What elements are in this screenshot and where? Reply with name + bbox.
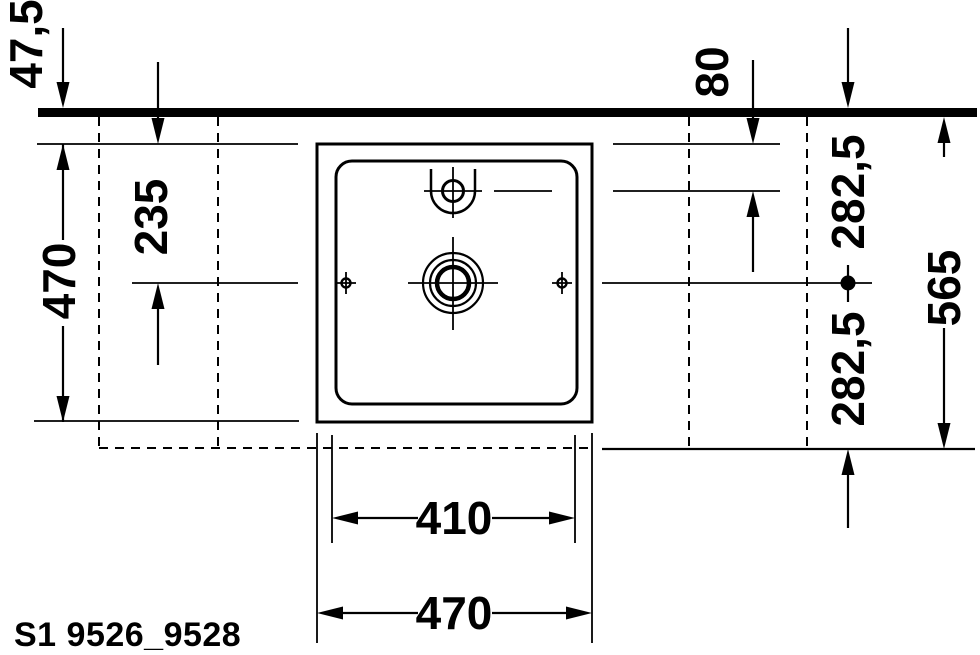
dim-basin-top-to-center: 235 [125, 62, 177, 365]
fixing-point-left [336, 272, 356, 294]
drain-symbol [408, 237, 498, 330]
dim-edge-to-faucet: 80 [686, 46, 760, 272]
dim-565-arrow-down [938, 423, 951, 449]
dim-470-left-arrow-down [57, 396, 70, 422]
fixing-point-right [552, 272, 572, 294]
dim-470-bottom-arrow-right [566, 607, 592, 620]
dim-label-center-to-back: 282,5 [822, 311, 874, 426]
dim-470-bottom-arrow-left [317, 607, 343, 620]
center-reference-marker [841, 265, 856, 302]
countertop-edge-bar [38, 108, 977, 117]
dim-edge-to-center: 282,5 [822, 28, 874, 250]
dim-label-edge-to-faucet: 80 [686, 46, 738, 97]
dim-edge-offset: 47,5 [0, 0, 70, 108]
dim-410-arrow-left [332, 512, 358, 525]
dim-235-arrow-down [152, 118, 165, 144]
dim-80-arrow-down [747, 118, 760, 144]
dim-410-arrow-right [549, 512, 575, 525]
dim-inner-width: 410 [332, 492, 575, 544]
dim-235-arrow-up [152, 283, 165, 309]
dim-edge-offset-arrow-down [57, 82, 70, 108]
dim-label-edge-offset: 47,5 [0, 0, 52, 89]
dim-center-to-back: 282,5 [822, 311, 874, 528]
dim-80-arrow-up [747, 191, 760, 217]
dim-outer-width: 470 [317, 587, 592, 639]
dim-label-outer-width: 470 [416, 587, 493, 639]
dim-label-inner-width: 410 [416, 492, 493, 544]
dim-label-basin-outer-depth: 470 [33, 243, 85, 320]
dim-basin-outer-depth: 470 [33, 144, 85, 422]
dim-470-left-arrow-up [57, 144, 70, 170]
dim-label-edge-to-back-total: 565 [918, 250, 970, 327]
faucet-hole-symbol [424, 167, 482, 218]
washbasin-dimension-drawing: 47,5 470 235 80 282,5 282,5 [0, 0, 980, 655]
product-code-label: S1 9526_9528 [14, 616, 241, 654]
dim-2825-bottom-arrow-up [842, 449, 855, 475]
dim-2825-top-arrow-down [842, 82, 855, 108]
dim-edge-to-back-total: 565 [918, 117, 970, 449]
technical-drawing-page: 47,5 470 235 80 282,5 282,5 [0, 0, 980, 655]
dim-565-arrow-up [938, 117, 951, 143]
dim-label-basin-top-to-center: 235 [125, 179, 177, 256]
dim-label-edge-to-center: 282,5 [822, 134, 874, 249]
center-marker-dot [841, 276, 856, 291]
